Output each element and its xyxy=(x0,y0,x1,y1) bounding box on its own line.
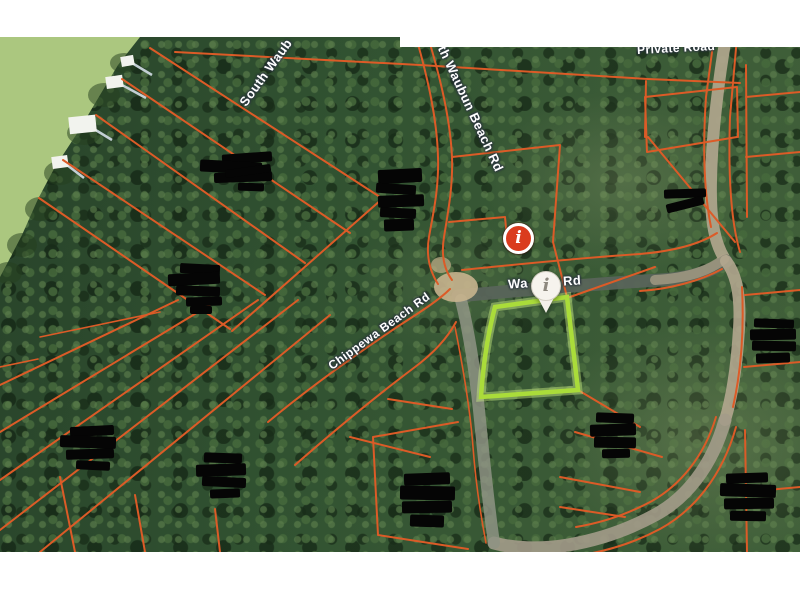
redacted-text xyxy=(596,412,634,423)
redacted-text xyxy=(190,306,212,314)
redacted-text xyxy=(378,168,423,184)
redacted-text xyxy=(720,483,776,498)
location-pin-icon[interactable]: i xyxy=(530,271,562,319)
redacted-text xyxy=(210,488,240,498)
redacted-text xyxy=(404,472,450,486)
redacted-text xyxy=(402,501,452,514)
redacted-text xyxy=(378,194,424,208)
roads xyxy=(431,37,800,548)
redacted-text xyxy=(76,460,110,471)
map-canvas[interactable]: South Waub th Waubun Beach Rd Private Ro… xyxy=(0,37,800,552)
redacted-text xyxy=(724,498,774,510)
redacted-text xyxy=(410,514,444,527)
redacted-text xyxy=(400,486,455,501)
redacted-text xyxy=(730,511,766,522)
parcel-boundaries xyxy=(0,37,800,552)
redacted-text xyxy=(756,352,790,363)
top-margin-strip xyxy=(400,37,800,47)
redacted-text xyxy=(380,207,416,219)
screenshot-root: South Waub th Waubun Beach Rd Private Ro… xyxy=(0,0,800,600)
redacted-text xyxy=(60,435,116,449)
info-marker-icon[interactable]: i xyxy=(503,223,534,254)
redacted-text xyxy=(752,341,796,352)
redacted-text xyxy=(726,472,768,483)
pin-info-glyph: i xyxy=(543,277,550,295)
redacted-text xyxy=(384,218,414,231)
redacted-text xyxy=(66,448,114,460)
road-label-waubun-rd-right: Rd xyxy=(562,272,581,288)
road-label-waubun-rd-left: Wa xyxy=(508,275,529,291)
info-glyph: i xyxy=(515,230,521,247)
redacted-text xyxy=(754,318,794,328)
redacted-text xyxy=(594,437,636,449)
redacted-text xyxy=(590,423,636,437)
redacted-text xyxy=(204,452,242,463)
redacted-text xyxy=(602,449,630,458)
redacted-text xyxy=(176,285,220,297)
redacted-text xyxy=(750,329,796,341)
redacted-text xyxy=(196,463,246,477)
terrain-layer xyxy=(0,37,800,552)
redacted-text xyxy=(238,183,264,192)
pin-head: i xyxy=(531,271,561,301)
